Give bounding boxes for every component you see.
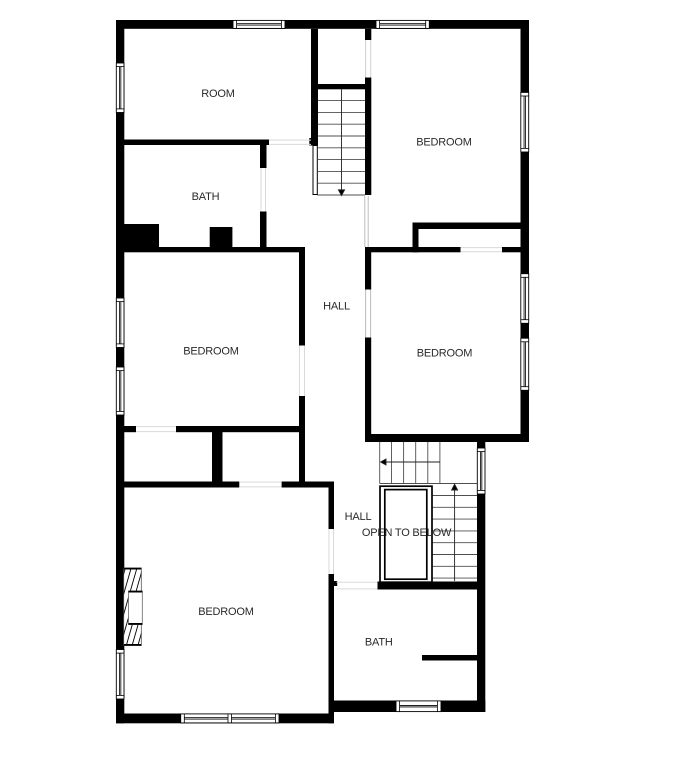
svg-text:BATH: BATH — [365, 637, 393, 649]
svg-text:BEDROOM: BEDROOM — [198, 606, 253, 618]
svg-text:BATH: BATH — [192, 191, 220, 203]
svg-text:ROOM: ROOM — [201, 88, 234, 100]
svg-text:BEDROOM: BEDROOM — [183, 346, 238, 358]
svg-text:HALL: HALL — [345, 511, 372, 523]
svg-text:BEDROOM: BEDROOM — [416, 137, 471, 149]
svg-text:BEDROOM: BEDROOM — [417, 348, 472, 360]
svg-text:OPEN TO BELOW: OPEN TO BELOW — [362, 527, 452, 539]
svg-text:HALL: HALL — [323, 301, 350, 313]
